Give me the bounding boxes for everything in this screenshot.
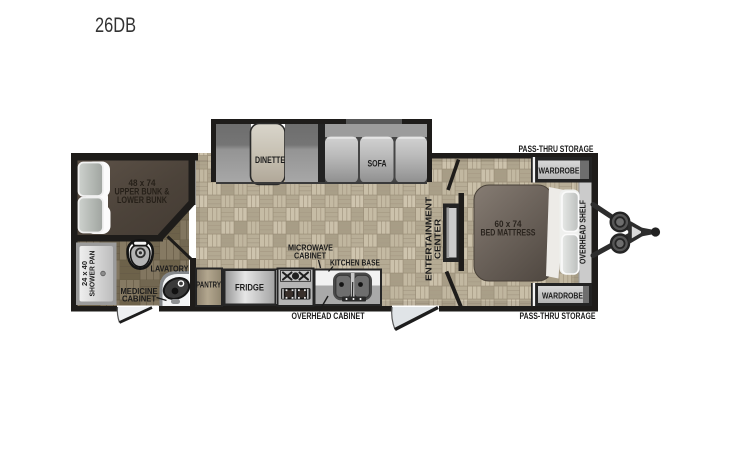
svg-text:LAVATORY: LAVATORY <box>151 264 189 274</box>
svg-text:DINETTE: DINETTE <box>255 155 285 166</box>
svg-text:CENTER: CENTER <box>433 219 443 259</box>
svg-text:BED MATTRESS: BED MATTRESS <box>481 228 536 238</box>
svg-text:WARDROBE: WARDROBE <box>539 166 580 176</box>
svg-text:PASS-THRU STORAGE: PASS-THRU STORAGE <box>519 144 594 155</box>
svg-text:PANTRY: PANTRY <box>196 280 221 290</box>
svg-text:LOWER BUNK: LOWER BUNK <box>117 195 167 205</box>
svg-text:PASS-THRU STORAGE: PASS-THRU STORAGE <box>520 311 596 322</box>
svg-text:FRIDGE: FRIDGE <box>235 283 264 293</box>
svg-text:OVERHEAD SHELF: OVERHEAD SHELF <box>578 200 588 264</box>
svg-text:SOFA: SOFA <box>368 159 387 170</box>
svg-text:SHOWER PAN: SHOWER PAN <box>88 251 97 297</box>
svg-text:KITCHEN BASE: KITCHEN BASE <box>330 258 380 268</box>
svg-text:CABINET: CABINET <box>294 251 327 261</box>
svg-text:OVERHEAD CABINET: OVERHEAD CABINET <box>292 311 365 321</box>
svg-text:CABINET: CABINET <box>122 295 156 304</box>
svg-text:26DB: 26DB <box>95 14 136 37</box>
svg-text:WARDROBE: WARDROBE <box>542 291 583 301</box>
